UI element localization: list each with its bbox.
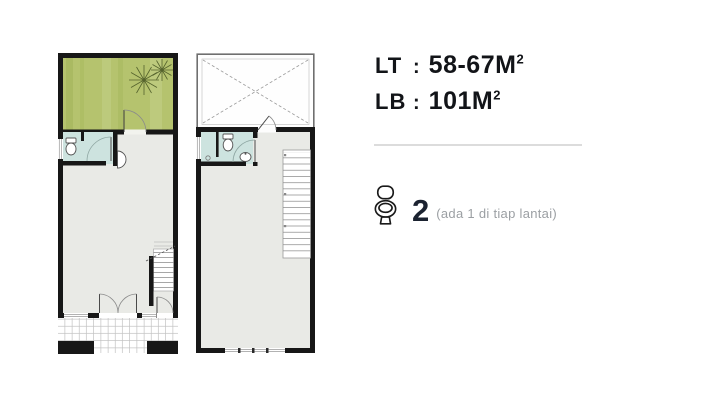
void-area — [197, 54, 314, 129]
sink-icon — [240, 153, 251, 162]
toilet-icon — [371, 184, 400, 226]
bathroom-note: (ada 1 di tiap lantai) — [436, 206, 557, 221]
window-front-right — [142, 313, 156, 318]
building-area-label: LB — [375, 89, 409, 115]
building-area-value: 101M2 — [429, 87, 501, 116]
stairs-2 — [283, 150, 311, 258]
window-left-2 — [196, 137, 201, 159]
colon: : — [413, 92, 420, 115]
floor-plan-1 — [58, 53, 178, 360]
garden-wall — [146, 130, 173, 135]
bathroom-count: 2 — [412, 197, 429, 224]
colon: : — [413, 56, 420, 79]
floor-plan-2 — [196, 53, 315, 358]
window-front-left — [64, 313, 88, 318]
garden-door-opening — [124, 130, 146, 135]
squared-sup: 2 — [493, 88, 501, 103]
floor-plan-1-drawing — [58, 53, 178, 355]
building-area-row: LB : 101M2 — [375, 87, 501, 116]
land-area-label: LT — [375, 53, 409, 79]
squared-sup: 2 — [516, 52, 524, 67]
land-area-row: LT : 58-67M2 — [375, 51, 524, 80]
planter-right — [147, 341, 178, 354]
toilet-fixture-icon — [66, 138, 76, 155]
bathroom-count-row: 2 (ada 1 di tiap lantai) — [371, 184, 557, 226]
section-divider — [374, 144, 582, 146]
garden — [63, 58, 173, 132]
window-left-1 — [58, 139, 63, 159]
window-rear — [225, 348, 285, 353]
floorplan-brochure: LT : 58-67M2 LB : 101M2 2 (ada 1 di tiap… — [0, 0, 715, 409]
planter-left — [58, 341, 94, 354]
toilet-fixture-icon — [223, 134, 233, 151]
land-area-value: 58-67M2 — [429, 51, 525, 80]
floor-plan-2-drawing — [196, 53, 315, 353]
shower-partition — [216, 132, 219, 157]
